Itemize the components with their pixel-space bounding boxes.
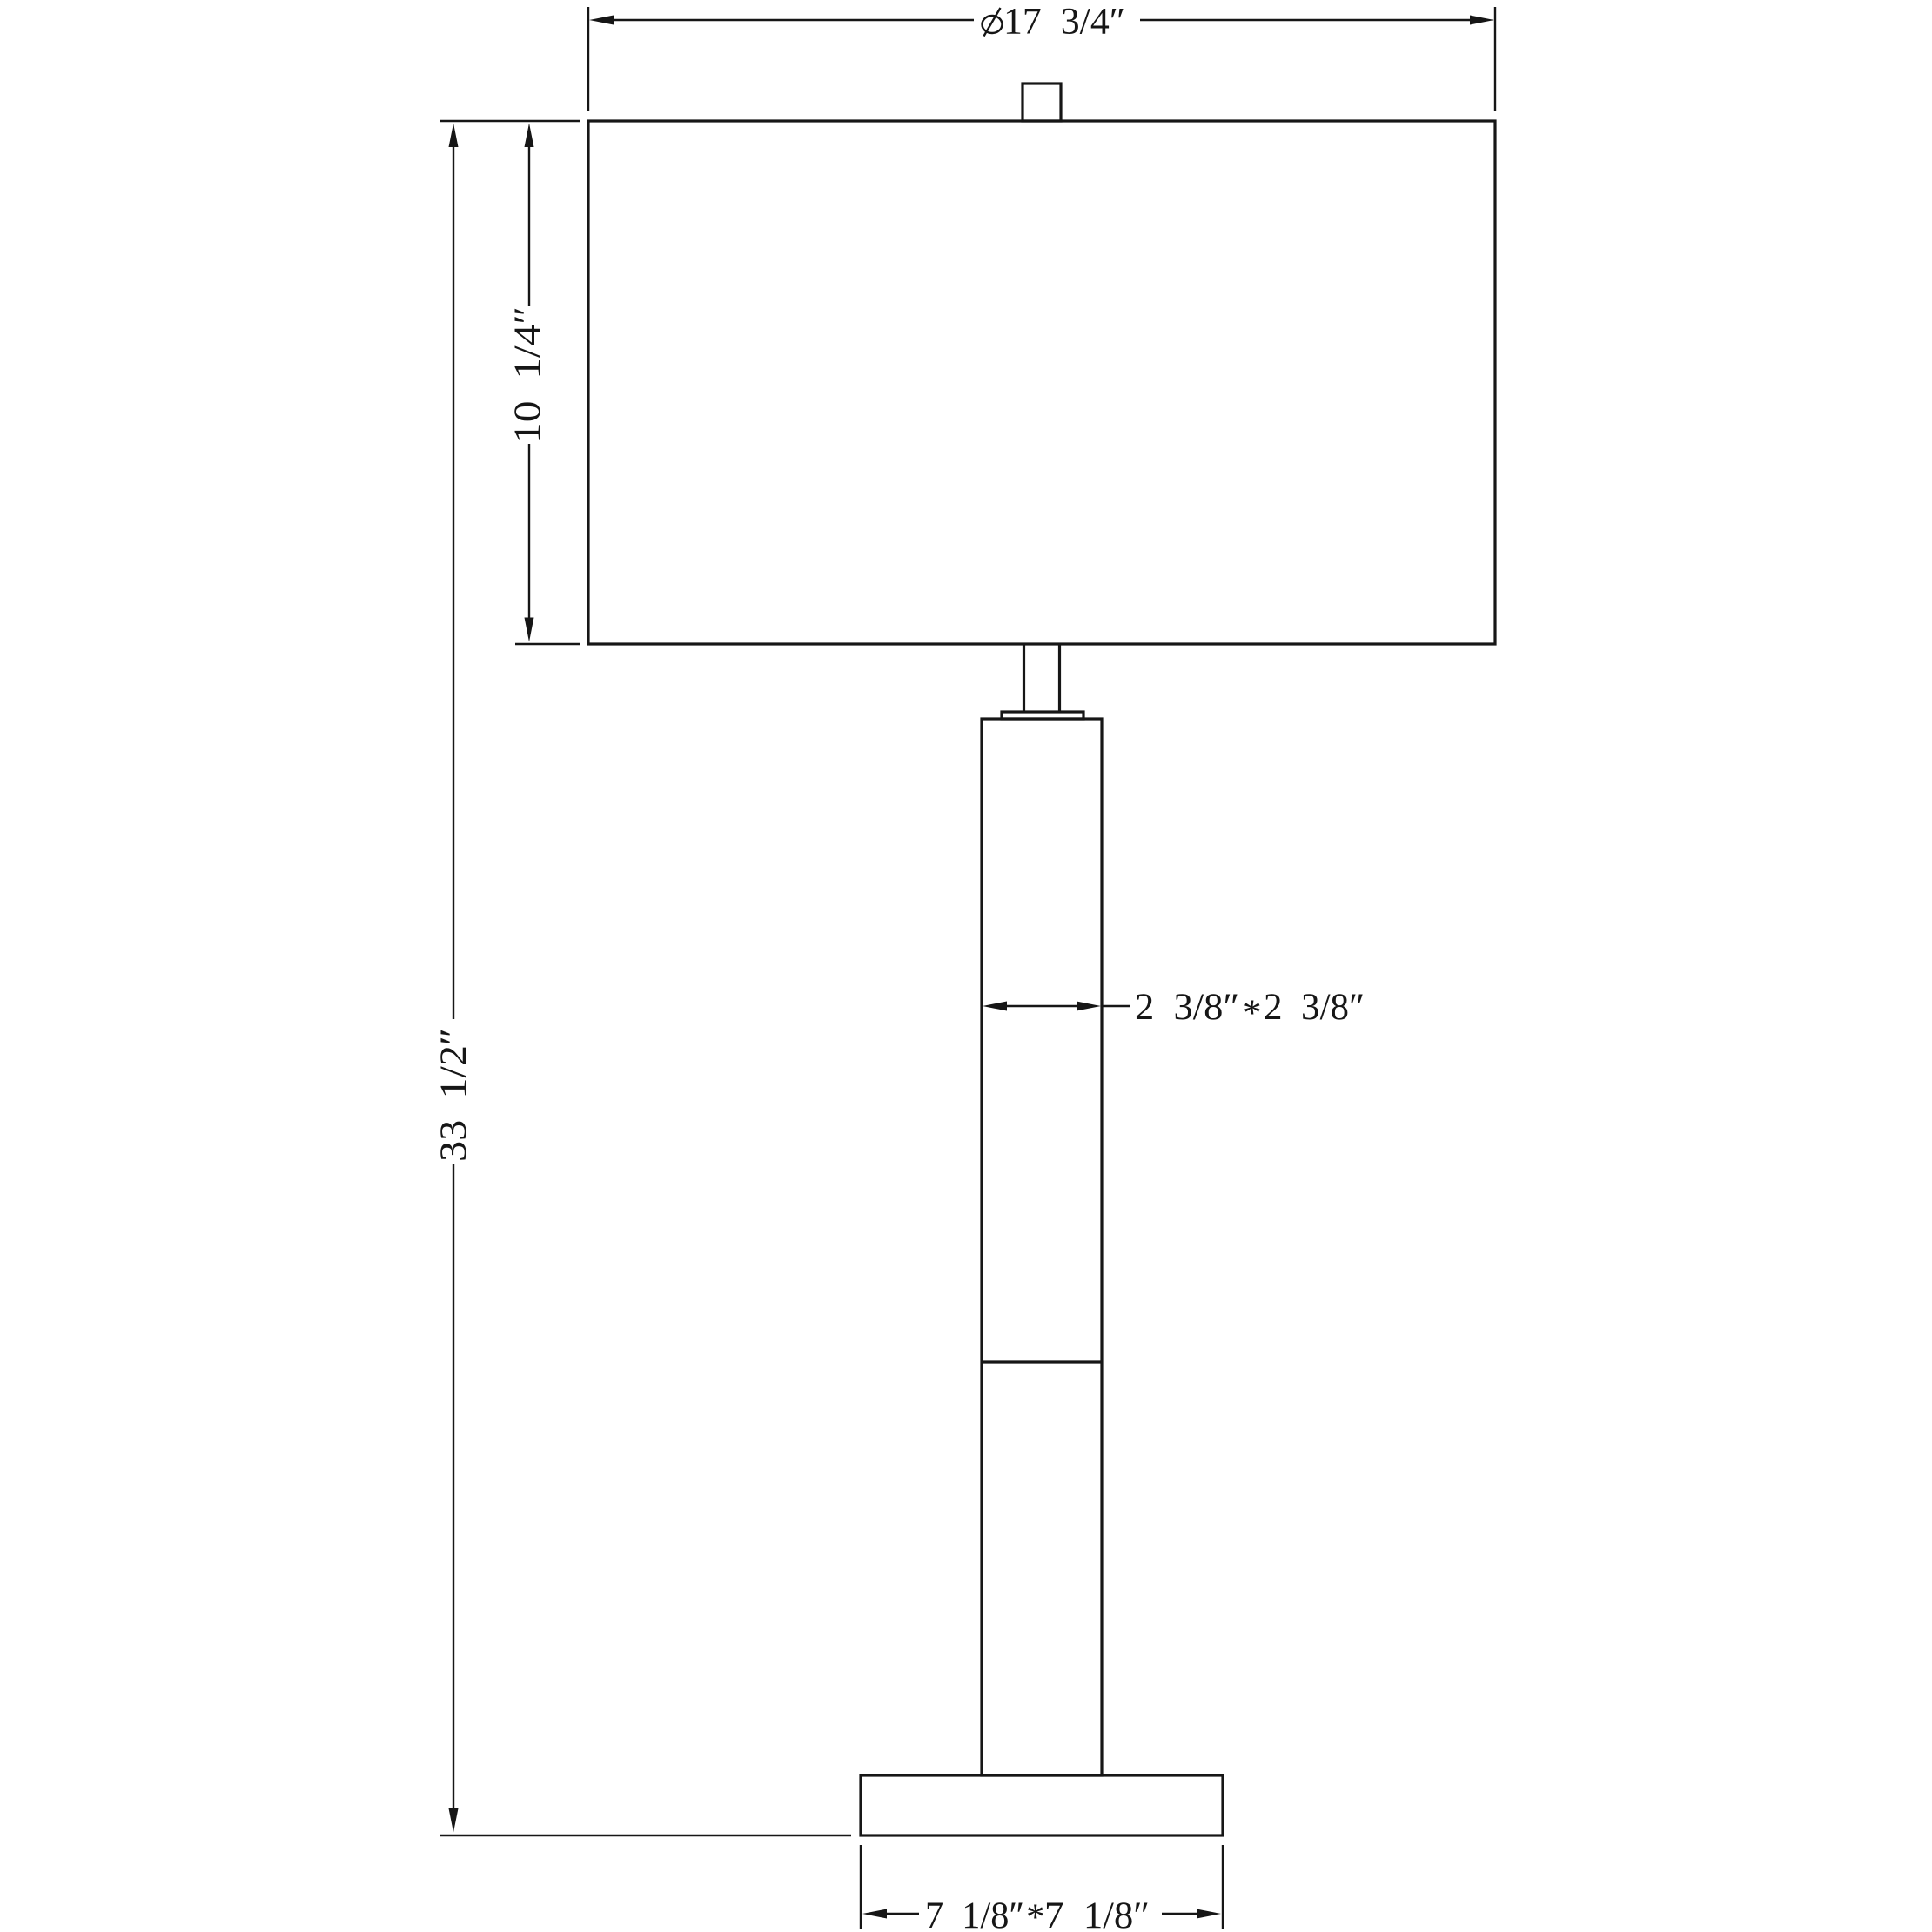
svg-text:7 1/8″: 7 1/8″ bbox=[1044, 1895, 1150, 1932]
svg-text:2 3/8″: 2 3/8″ bbox=[1135, 987, 1239, 1028]
svg-text:33 1/2″: 33 1/2″ bbox=[433, 1028, 474, 1162]
svg-text:2 3/8″: 2 3/8″ bbox=[1264, 987, 1365, 1028]
svg-text:7 1/8″: 7 1/8″ bbox=[925, 1895, 1024, 1932]
svg-text:*: * bbox=[1243, 993, 1262, 1034]
svg-text:*: * bbox=[1026, 1897, 1045, 1932]
svg-text:10 1/4″: 10 1/4″ bbox=[507, 306, 548, 444]
svg-text:17 3/4″: 17 3/4″ bbox=[1003, 2, 1125, 43]
